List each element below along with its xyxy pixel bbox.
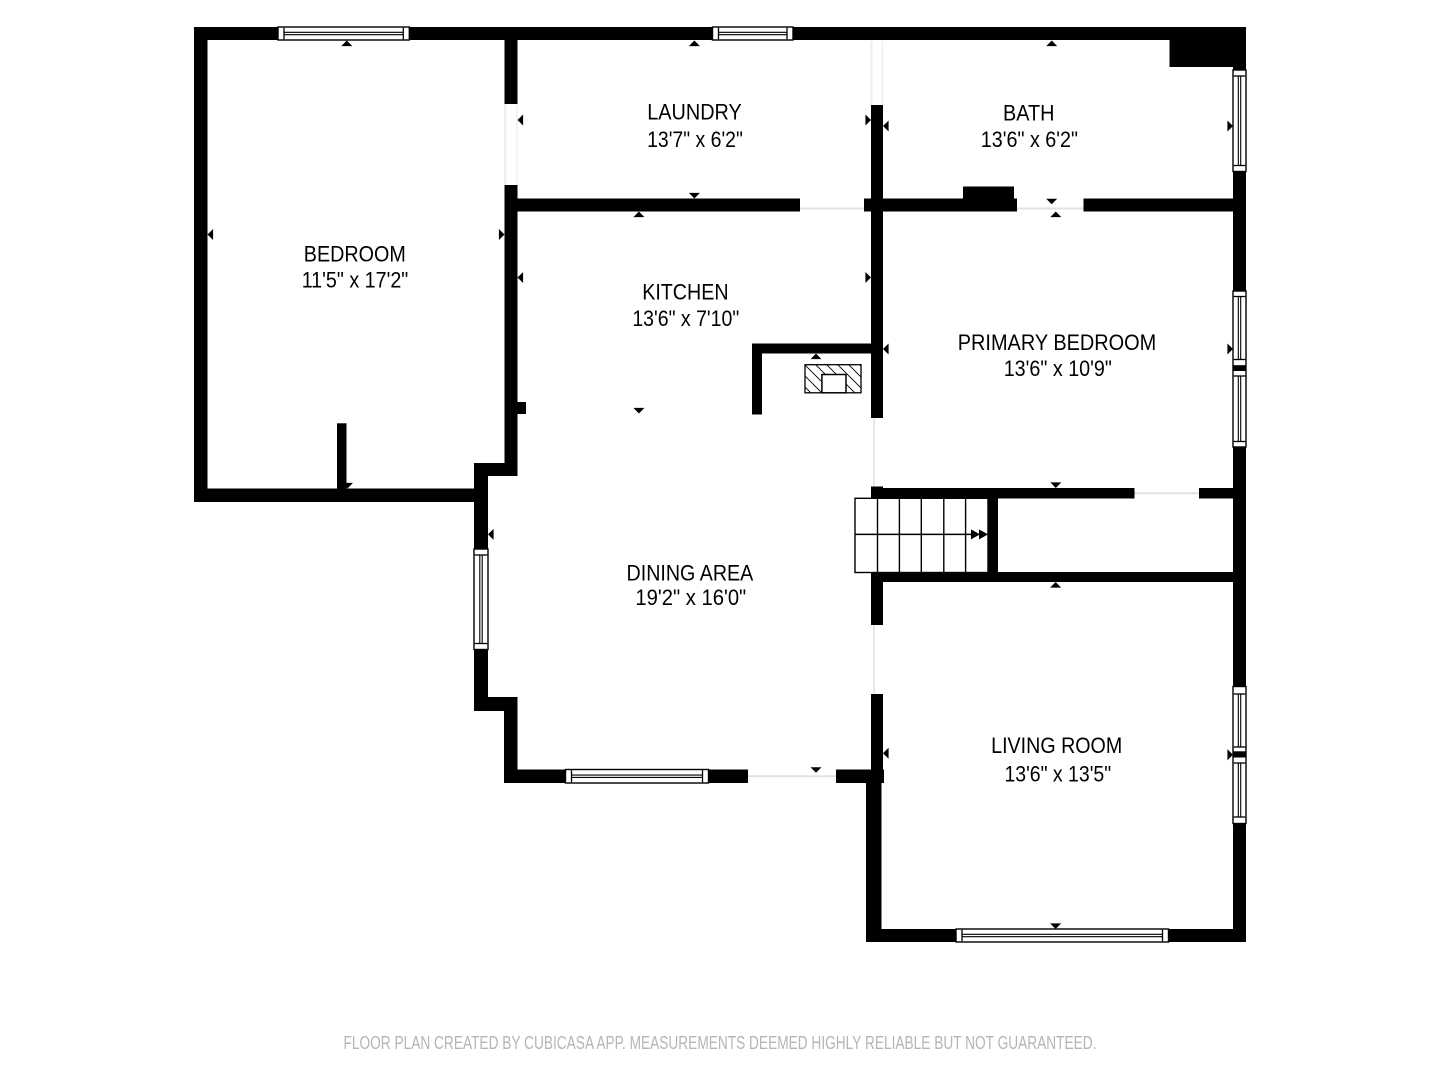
svg-text:FLOOR PLAN CREATED BY CUBICASA: FLOOR PLAN CREATED BY CUBICASA APP. MEAS…: [344, 1033, 1097, 1053]
svg-text:DINING AREA: DINING AREA: [627, 561, 754, 586]
svg-text:LAUNDRY: LAUNDRY: [647, 99, 742, 124]
svg-text:11'5" x 17'2": 11'5" x 17'2": [302, 267, 409, 292]
svg-text:13'7" x 6'2": 13'7" x 6'2": [647, 127, 743, 152]
svg-text:PRIMARY BEDROOM: PRIMARY BEDROOM: [958, 330, 1157, 355]
svg-text:19'2" x 16'0": 19'2" x 16'0": [635, 585, 746, 610]
svg-text:13'6" x 10'9": 13'6" x 10'9": [1004, 356, 1112, 381]
svg-text:BATH: BATH: [1003, 100, 1054, 125]
svg-text:13'6" x 6'2": 13'6" x 6'2": [981, 127, 1078, 152]
svg-text:13'6" x 7'10": 13'6" x 7'10": [632, 306, 739, 331]
svg-text:13'6" x 13'5": 13'6" x 13'5": [1004, 762, 1111, 787]
svg-text:LIVING ROOM: LIVING ROOM: [991, 733, 1122, 758]
svg-text:KITCHEN: KITCHEN: [642, 279, 728, 304]
svg-text:BEDROOM: BEDROOM: [304, 242, 406, 267]
